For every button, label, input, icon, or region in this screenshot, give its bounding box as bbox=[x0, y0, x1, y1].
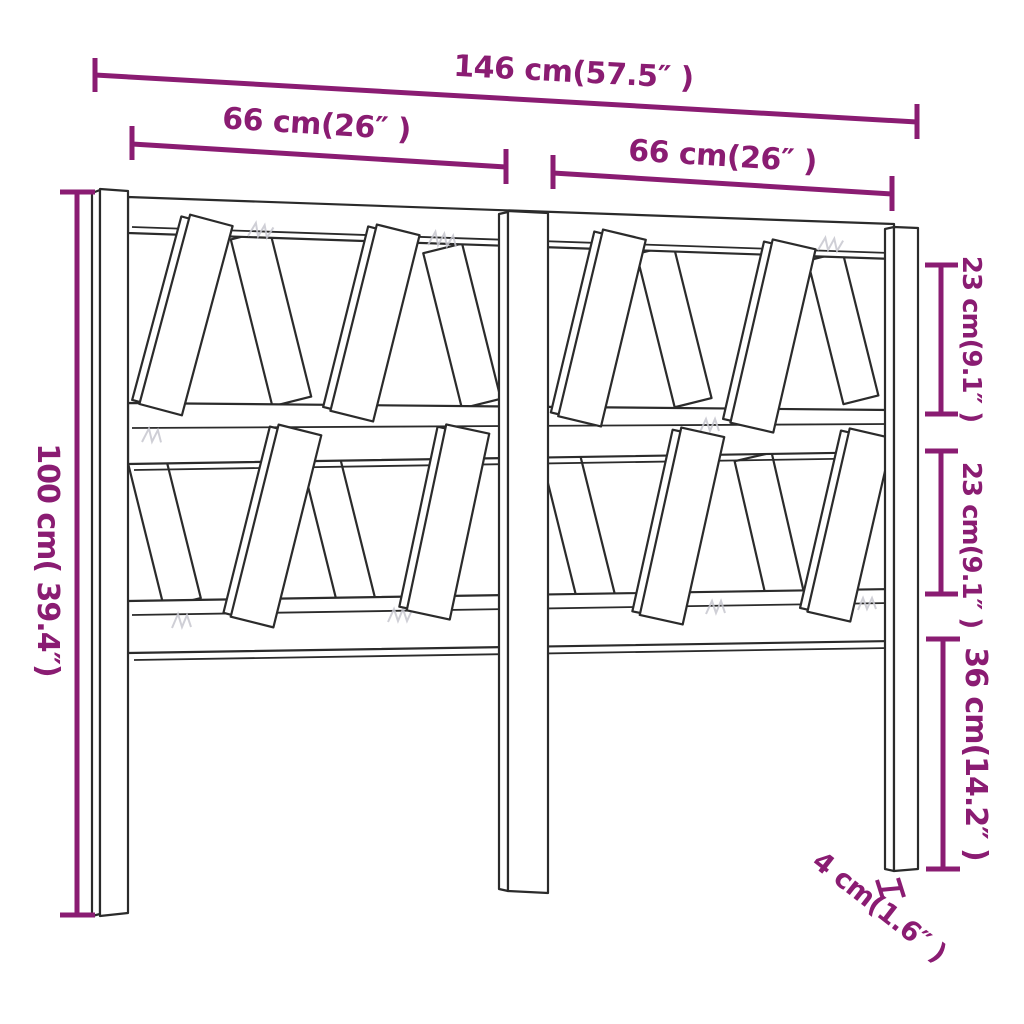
headboard-dimension-diagram: 146 cm(57.5″ ) 66 cm(26″ ) 66 cm(26″ ) 1… bbox=[0, 0, 1024, 1024]
slat bbox=[735, 453, 806, 608]
center-post-side-face bbox=[499, 212, 508, 891]
plank bbox=[323, 223, 420, 422]
dimension-label-total-height: 100 cm( 39.4″) bbox=[30, 443, 65, 676]
dimension-right-section-width: 66 cm(26″ ) bbox=[553, 133, 892, 211]
dimension-label-upper-gap: 23 cm(9.1″ ) bbox=[956, 256, 986, 422]
dimension-label-right-section: 66 cm(26″ ) bbox=[627, 133, 818, 179]
slat bbox=[540, 444, 615, 606]
plank bbox=[550, 228, 645, 427]
dimension-line bbox=[553, 173, 892, 194]
left-post bbox=[100, 189, 128, 916]
right-post bbox=[894, 227, 918, 871]
plank-front-face bbox=[139, 215, 232, 416]
dimension-label-total-width: 146 cm(57.5″ ) bbox=[453, 49, 695, 97]
right-post-side-face bbox=[885, 227, 894, 871]
slat bbox=[636, 245, 711, 407]
dimension-left-section-width: 66 cm(26″ ) bbox=[132, 101, 506, 184]
dimension-line bbox=[132, 144, 506, 167]
left-post-side-face bbox=[92, 190, 100, 916]
dimension-label-lower-gap: 23 cm(9.1″ ) bbox=[956, 462, 986, 628]
slat bbox=[423, 244, 501, 409]
dimension-total-height: 100 cm( 39.4″) bbox=[30, 192, 95, 915]
dimension-lower-gap: 23 cm(9.1″ ) bbox=[925, 451, 986, 628]
slat bbox=[231, 230, 311, 407]
dimension-label-left-section: 66 cm(26″ ) bbox=[221, 101, 412, 147]
dimension-post-thickness: 4 cm(1.6″ ) bbox=[806, 846, 952, 969]
dimension-label-post-thickness: 4 cm(1.6″ ) bbox=[806, 846, 952, 969]
headboard-drawing bbox=[92, 189, 918, 916]
plank bbox=[132, 213, 233, 416]
center-post bbox=[508, 211, 548, 893]
plank bbox=[723, 238, 816, 433]
dimension-upper-gap: 23 cm(9.1″ ) bbox=[925, 256, 986, 422]
dimension-label-leg-height: 36 cm(14.2″ ) bbox=[958, 647, 993, 861]
slat bbox=[125, 443, 201, 607]
dimension-leg-height: 36 cm(14.2″ ) bbox=[926, 639, 993, 869]
dimension-total-width: 146 cm(57.5″ ) bbox=[95, 49, 917, 139]
slat bbox=[808, 252, 879, 404]
